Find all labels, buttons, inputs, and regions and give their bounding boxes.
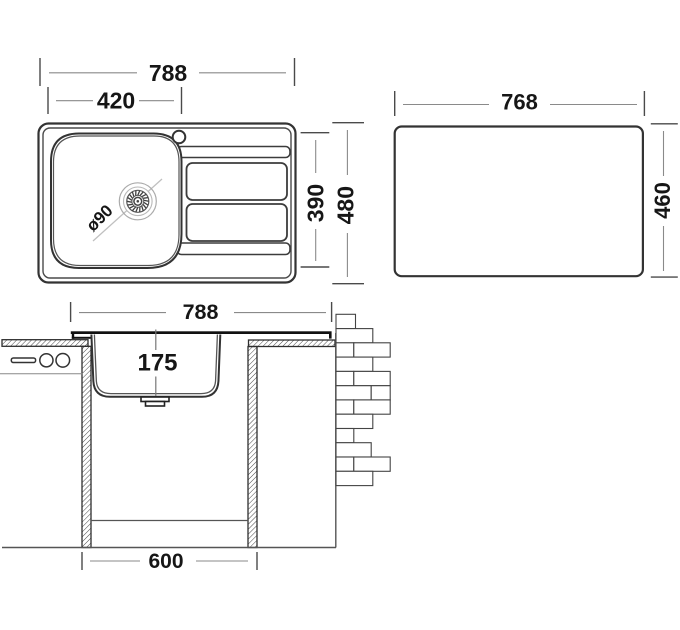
svg-text:768: 768: [501, 90, 538, 115]
svg-text:420: 420: [97, 88, 135, 114]
svg-text:600: 600: [148, 550, 183, 573]
svg-text:480: 480: [333, 186, 359, 224]
svg-text:175: 175: [137, 350, 177, 377]
svg-text:788: 788: [149, 60, 188, 86]
svg-text:390: 390: [303, 184, 329, 222]
svg-text:788: 788: [183, 300, 219, 324]
svg-text:460: 460: [650, 182, 675, 219]
